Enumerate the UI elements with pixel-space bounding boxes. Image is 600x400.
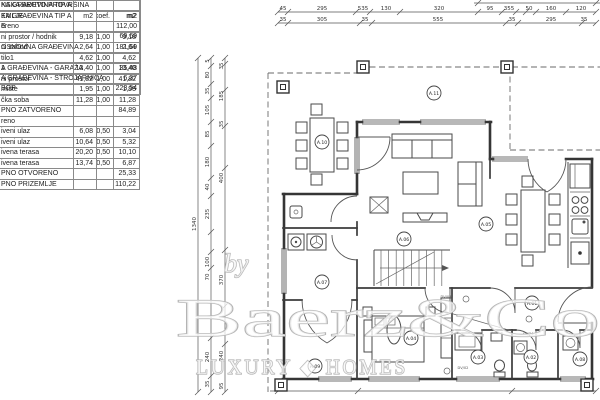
room-id: A.05 xyxy=(481,222,491,228)
table-cell-value: 1,00 xyxy=(97,85,114,96)
structural-column xyxy=(275,379,287,391)
dim-label: 40 xyxy=(205,183,211,190)
table-cell-value xyxy=(97,169,114,180)
dim-label: 35 xyxy=(509,17,516,23)
dim-label: 35 xyxy=(362,17,369,23)
dim-label: 180 xyxy=(205,156,211,167)
dim-label: 45 xyxy=(280,6,287,12)
table-cell-value: 0,50 xyxy=(97,127,114,138)
table-cell-value xyxy=(74,1,97,12)
table-cell-value xyxy=(74,22,97,33)
dim-label: 50 xyxy=(526,6,533,12)
table-cell-value: 13,40 xyxy=(114,64,140,75)
dim-label: 35 xyxy=(205,380,211,387)
dim-label: 105 xyxy=(205,104,211,115)
table-row-label: EMLJE xyxy=(0,12,74,23)
room-label-A.03: A.03 xyxy=(471,350,485,364)
table-cell-value xyxy=(114,117,140,128)
table-row-label: čka soba xyxy=(0,96,74,107)
table-cell-value: 110,22 xyxy=(114,180,140,191)
dim-label: 80 xyxy=(205,71,211,78)
dim-label: 35 xyxy=(205,87,211,94)
room-label-A.11: A.11 xyxy=(427,86,441,100)
dim-label: 400 xyxy=(219,172,225,183)
table-cell-value: 5,32 xyxy=(114,138,140,149)
dim-label: 35 xyxy=(280,17,287,23)
water-heater xyxy=(290,206,302,218)
table-cell-value: 4,62 xyxy=(114,54,140,65)
table-cell-value xyxy=(97,106,114,117)
table-cell-value: m2 xyxy=(74,12,97,23)
table-cell-value: 10,64 xyxy=(74,138,97,149)
dim-label: 95 xyxy=(487,6,494,12)
dim-label: 35 xyxy=(219,62,225,69)
table-row-label: 1 xyxy=(0,64,74,75)
table-cell-value: 3,04 xyxy=(114,127,140,138)
room-label-A.07: A.07 xyxy=(315,275,329,289)
dim-label: 235 xyxy=(205,208,211,219)
table-cell-value xyxy=(97,180,114,191)
table-cell-value: 1,00 xyxy=(97,33,114,44)
dim-label: 320 xyxy=(434,6,445,12)
fridge xyxy=(570,164,590,188)
dim-label: 535 xyxy=(358,6,369,12)
table-cell-value: 1,00 xyxy=(97,43,114,54)
floor-plan-sheet: 4529553513032095355501601203530535555352… xyxy=(0,0,600,400)
room-label-A.02: A.02 xyxy=(524,350,538,364)
table-row-label: KA GRAĐEVINA TIP A xyxy=(0,1,74,12)
table-cell-value: 1,95 xyxy=(114,85,140,96)
faucet xyxy=(583,221,586,224)
table-cell-value: 10,10 xyxy=(114,148,140,159)
sofa xyxy=(392,134,452,158)
structural-column xyxy=(581,379,593,391)
table-cell-value: 4,62 xyxy=(74,54,97,65)
dim-label: 130 xyxy=(381,6,392,12)
watermark-by: by xyxy=(224,249,249,278)
table-row-label: PNO PRIZEMLJE xyxy=(0,180,74,191)
table-cell-value xyxy=(114,22,140,33)
table-cell-value: 84,89 xyxy=(114,106,140,117)
table-cell-value: 1,95 xyxy=(74,85,97,96)
table-cell-value: 9,18 xyxy=(114,33,140,44)
dim-top-chain-1: 452955351303209535550160120 xyxy=(275,6,599,15)
light-point xyxy=(444,368,450,374)
table-cell-value: 2,64 xyxy=(74,43,97,54)
room-label-A.06: A.06 xyxy=(397,232,411,246)
table-cell-value: 1,00 xyxy=(97,75,114,86)
table-cell-value: 0,50 xyxy=(97,138,114,149)
table-cell-value: 1,00 xyxy=(97,96,114,107)
dim-label: 160 xyxy=(546,6,557,12)
table-cell-value: 20,20 xyxy=(74,148,97,159)
tv xyxy=(417,213,433,220)
structural-column xyxy=(357,61,369,73)
room-label-A.10: A.10 xyxy=(315,135,329,149)
dim-top-chain-2: 35305355553529535 xyxy=(275,17,599,26)
living-room-furniture xyxy=(370,134,482,222)
net-area-table: KA GRAĐEVINA TIP AEMLJEm2koef.m2orenoni … xyxy=(0,0,140,190)
dim-label: 120 xyxy=(576,6,587,12)
cooktop-burner xyxy=(572,197,579,204)
dim-label: 95 xyxy=(219,382,225,389)
cooktop-burner xyxy=(581,207,588,214)
stair-direction-arrow xyxy=(442,265,449,271)
dim-label: 295 xyxy=(546,17,557,23)
kitchen-counter xyxy=(568,162,590,268)
table-cell-value xyxy=(97,117,114,128)
kitchen-sink xyxy=(572,219,588,234)
watermark-tagline: LUXURY ◆ HOMES xyxy=(196,355,408,379)
table-row-label: iveni ulaz xyxy=(0,127,74,138)
room-id: A.10 xyxy=(317,140,327,146)
table-cell-value: 13,74 xyxy=(74,159,97,170)
dining-table-indoor xyxy=(506,176,560,266)
room-id: A.02 xyxy=(526,355,536,361)
table-cell-value: 11,28 xyxy=(114,96,140,107)
room-id: A.11 xyxy=(429,91,439,97)
table-row-label: tilo1 xyxy=(0,54,74,65)
watermark-brand: Baerz&Co xyxy=(176,288,600,348)
table-cell-value xyxy=(97,1,114,12)
table-cell-value: m2 xyxy=(114,12,140,23)
table-cell-value: 41,82 xyxy=(74,75,97,86)
dim-label: 5 xyxy=(205,59,211,63)
table-row-label: oreno xyxy=(0,22,74,33)
table-cell-value: 2,64 xyxy=(114,43,140,54)
table-row-label: ni zahod xyxy=(0,43,74,54)
room-id: A.06 xyxy=(399,237,409,243)
table-row-label: reno xyxy=(0,117,74,128)
table-cell-value: 41,82 xyxy=(114,75,140,86)
table-cell-value xyxy=(97,22,114,33)
coffee-table xyxy=(403,172,438,194)
toilet xyxy=(495,360,505,371)
table-cell-value: 1,00 xyxy=(97,64,114,75)
cooktop-burner xyxy=(572,207,579,214)
dim-label: 555 xyxy=(433,17,444,23)
dim-label: 35 xyxy=(581,17,588,23)
table-row-label: ivena terasa xyxy=(0,148,74,159)
table-cell-value: koef. xyxy=(97,12,114,23)
dim-label: 185 xyxy=(219,90,225,101)
dim-label: 85 xyxy=(205,130,211,137)
room-id: A.08 xyxy=(575,357,585,363)
table-cell-value: 0,50 xyxy=(97,148,114,159)
table-cell-value: 6,08 xyxy=(74,127,97,138)
dim-label: 35 xyxy=(219,120,225,127)
table-cell-value xyxy=(74,180,97,191)
dim-label: 305 xyxy=(317,17,328,23)
table-cell-value xyxy=(74,106,97,117)
room-label-A.05: A.05 xyxy=(479,217,493,231)
table-row-label: PNO ZATVORENO xyxy=(0,106,74,117)
table-cell-value: 25,33 xyxy=(114,169,140,180)
table-cell-value: 6,87 xyxy=(114,159,140,170)
dim-label: 295 xyxy=(317,6,328,12)
dim-label: 100 xyxy=(205,256,211,267)
staircase xyxy=(374,250,450,286)
table-cell-value xyxy=(114,1,140,12)
dim-label: 70 xyxy=(205,273,211,280)
table-row-label: ni prostor xyxy=(0,75,74,86)
room-id: A.03 xyxy=(473,355,483,361)
structural-column xyxy=(277,81,289,93)
table-cell-value: 1,00 xyxy=(97,54,114,65)
cooktop-burner xyxy=(581,197,588,204)
dim-label: 1340 xyxy=(192,217,198,231)
tv-sideboard xyxy=(403,213,447,222)
table-cell-value: 0,50 xyxy=(97,159,114,170)
table-cell-value: 13,40 xyxy=(74,64,97,75)
table-row-label: PNO OTVORENO xyxy=(0,169,74,180)
table-cell-value: 11,28 xyxy=(74,96,97,107)
table-row-label: ivena terasa xyxy=(0,159,74,170)
table-row-label: mište xyxy=(0,85,74,96)
door-tag: DV/02 xyxy=(458,366,469,370)
room-id: A.07 xyxy=(317,280,327,286)
table-cell-value xyxy=(74,169,97,180)
structural-column xyxy=(501,61,513,73)
table-cell-value: 9,18 xyxy=(74,33,97,44)
table-row-label: ni prostor / hodnik xyxy=(0,33,74,44)
table-cell-value xyxy=(74,117,97,128)
dim-bottom-chain xyxy=(270,388,599,394)
table-row-label: iveni ulaz xyxy=(0,138,74,149)
dim-label: 355 xyxy=(504,6,515,12)
room-label-A.08: A.08 xyxy=(573,352,587,366)
